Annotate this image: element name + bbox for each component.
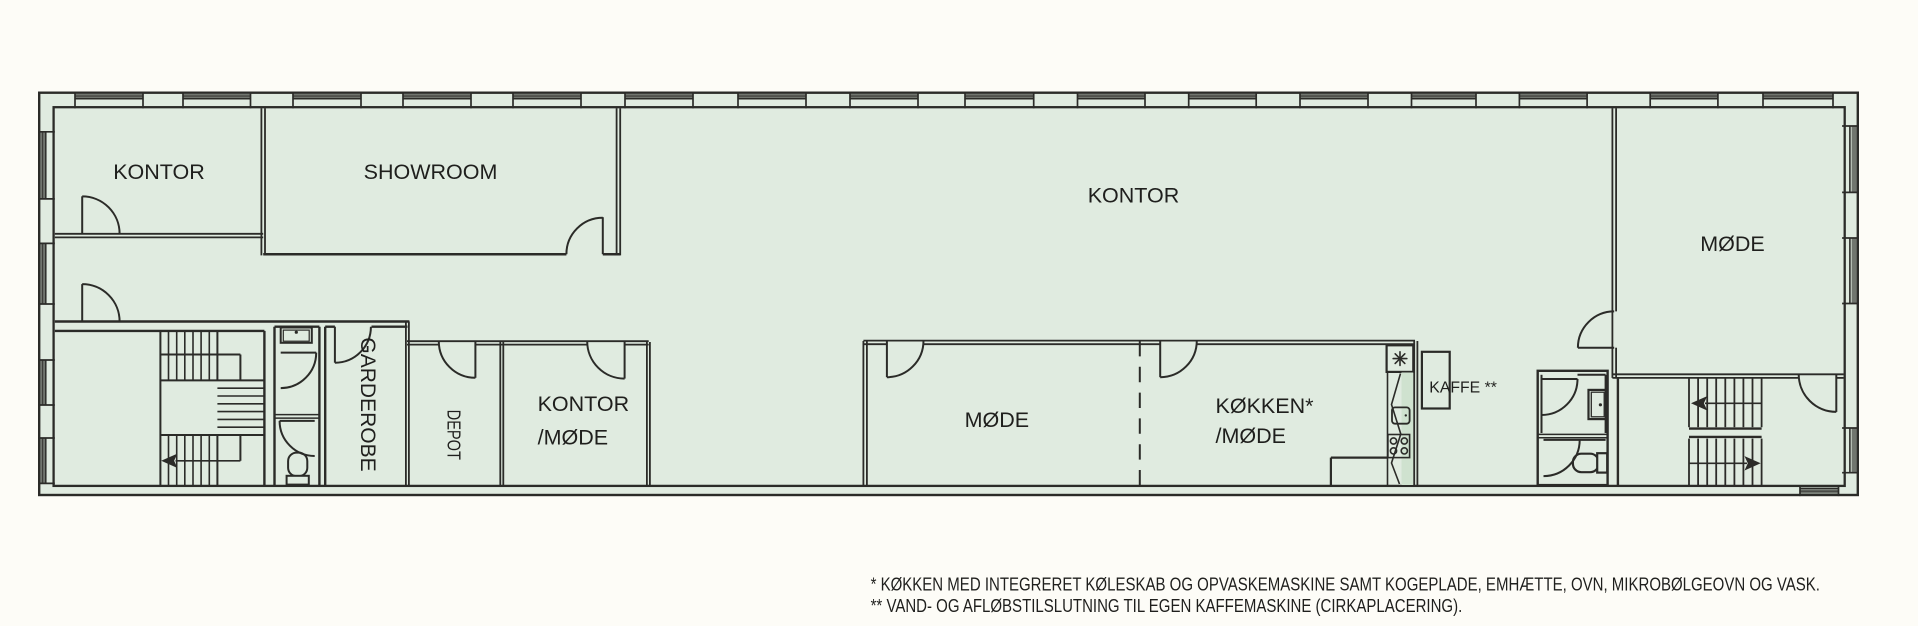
svg-text:KØKKEN*: KØKKEN*	[1216, 394, 1315, 418]
svg-text:MØDE: MØDE	[965, 408, 1030, 432]
svg-text:KONTOR: KONTOR	[113, 160, 205, 184]
svg-text:KONTOR: KONTOR	[538, 392, 630, 416]
svg-text:DEPOT: DEPOT	[444, 410, 465, 460]
svg-text:* KØKKEN MED INTEGRERET KØLESK: * KØKKEN MED INTEGRERET KØLESKAB OG OPVA…	[871, 574, 1820, 595]
svg-text:MØDE: MØDE	[1700, 232, 1765, 256]
svg-text:GARDEROBE: GARDEROBE	[356, 337, 379, 471]
svg-text:/MØDE: /MØDE	[1216, 424, 1286, 448]
svg-text:KAFFE **: KAFFE **	[1429, 379, 1497, 396]
svg-text:** VAND- OG AFLØBSTILSLUTNING: ** VAND- OG AFLØBSTILSLUTNING TIL EGEN K…	[871, 595, 1463, 616]
svg-text:KONTOR: KONTOR	[1088, 183, 1180, 207]
svg-text:/MØDE: /MØDE	[538, 425, 608, 449]
svg-text:SHOWROOM: SHOWROOM	[364, 160, 498, 184]
